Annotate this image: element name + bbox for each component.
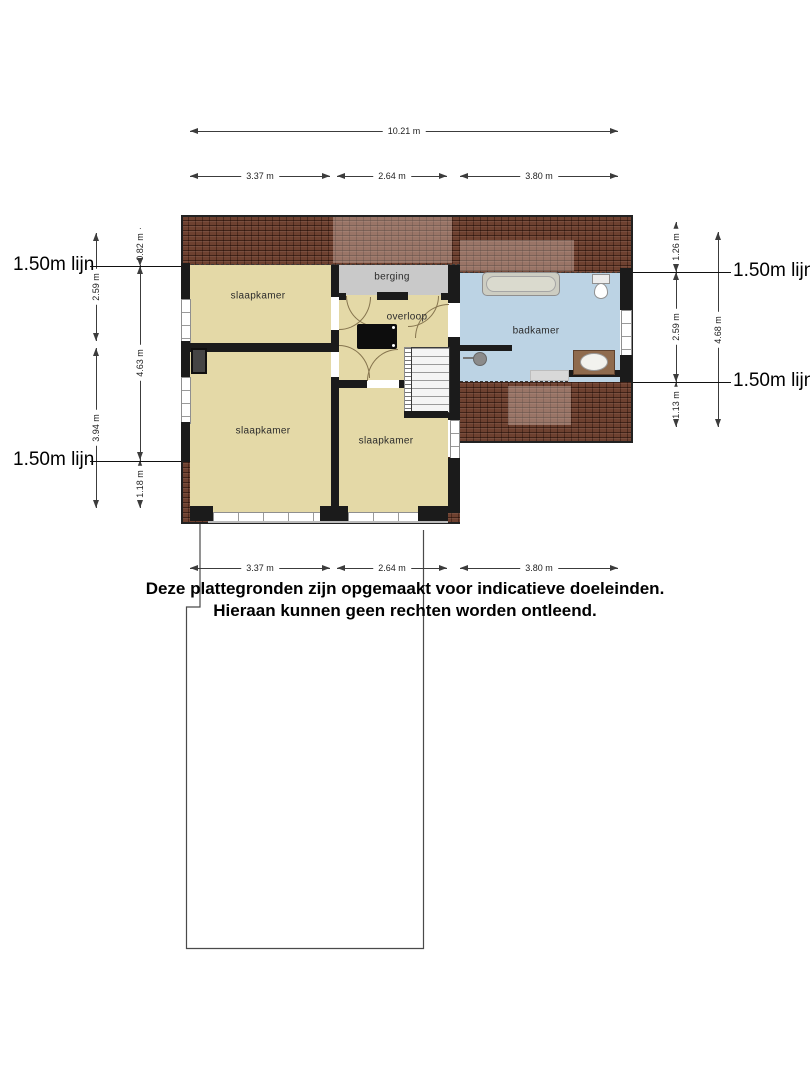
window-left-lower bbox=[181, 377, 191, 424]
wall bbox=[190, 506, 213, 521]
floorplan-page: 10.21 m 3.37 m 2.64 m 3.80 m 2.59 m 3.94… bbox=[0, 0, 810, 1080]
outline-top bbox=[181, 215, 633, 217]
roof-dormer-wing-bottom bbox=[508, 386, 571, 425]
room-label-bathroom: badkamer bbox=[513, 326, 560, 337]
wall bbox=[620, 355, 632, 382]
wall bbox=[339, 380, 367, 388]
wall bbox=[452, 337, 460, 382]
window-sill bbox=[208, 521, 448, 523]
wall bbox=[181, 422, 190, 462]
dim-label: 3.80 m bbox=[520, 563, 558, 573]
wall bbox=[418, 506, 448, 521]
wall-stairwell bbox=[404, 411, 448, 418]
room-label-landing: overloop bbox=[387, 312, 428, 323]
dim-label: 2.64 m bbox=[373, 563, 411, 573]
chimney-duct bbox=[191, 348, 207, 374]
wall bbox=[331, 330, 339, 345]
wall bbox=[331, 377, 339, 513]
window-bathroom bbox=[621, 310, 632, 357]
shower-head bbox=[473, 352, 487, 366]
bath-mat bbox=[530, 370, 569, 381]
wall bbox=[320, 506, 348, 521]
room-label-bedroom-bottom-middle: slaapkamer bbox=[359, 436, 414, 447]
room-label-bedroom-bottom-left: slaapkamer bbox=[236, 426, 291, 437]
ground-floor-outline bbox=[0, 0, 810, 1080]
wall bbox=[181, 341, 190, 377]
wall bbox=[181, 263, 190, 299]
bathtub bbox=[482, 272, 560, 296]
wall bbox=[452, 265, 460, 303]
disclaimer-line-2: Hieraan kunnen geen rechten worden ontle… bbox=[0, 600, 810, 622]
dim-bottom-segment-2: 2.64 m bbox=[337, 568, 447, 569]
roof-dormer-wing-top bbox=[460, 240, 574, 271]
wall-bedroom-divider bbox=[190, 343, 339, 352]
dim-label: 3.37 m bbox=[241, 563, 279, 573]
dim-bottom-segment-3: 3.80 m bbox=[460, 568, 618, 569]
roof-dormer-top bbox=[333, 217, 455, 263]
wall bbox=[620, 268, 632, 310]
room-label-bedroom-top-left: slaapkamer bbox=[231, 291, 286, 302]
wall-shower-stub bbox=[460, 345, 512, 351]
void-corner-dot bbox=[392, 326, 395, 329]
disclaimer-line-1: Deze plattegronden zijn opgemaakt voor i… bbox=[0, 578, 810, 600]
window-right-middle-bedroom bbox=[450, 420, 460, 460]
void-opening bbox=[357, 324, 397, 349]
roofline-dashed-bathroom-bottom bbox=[460, 381, 568, 382]
stairs bbox=[411, 347, 450, 413]
wall bbox=[377, 292, 408, 300]
void-corner-dot bbox=[392, 344, 395, 347]
sink-basin bbox=[580, 353, 608, 371]
wall bbox=[441, 293, 448, 300]
disclaimer: Deze plattegronden zijn opgemaakt voor i… bbox=[0, 578, 810, 622]
toilet-bowl bbox=[594, 283, 608, 299]
wall bbox=[331, 265, 339, 297]
roofline-dashed-top bbox=[181, 264, 460, 265]
room-bedroom-top-left bbox=[190, 265, 331, 343]
wall bbox=[448, 458, 460, 513]
bathtub-inner bbox=[486, 276, 556, 292]
dim-bottom-segment-1: 3.37 m bbox=[190, 568, 330, 569]
room-label-storage: berging bbox=[374, 272, 409, 283]
window-left-upper bbox=[181, 299, 191, 343]
outline-wing-bottom bbox=[452, 441, 633, 443]
